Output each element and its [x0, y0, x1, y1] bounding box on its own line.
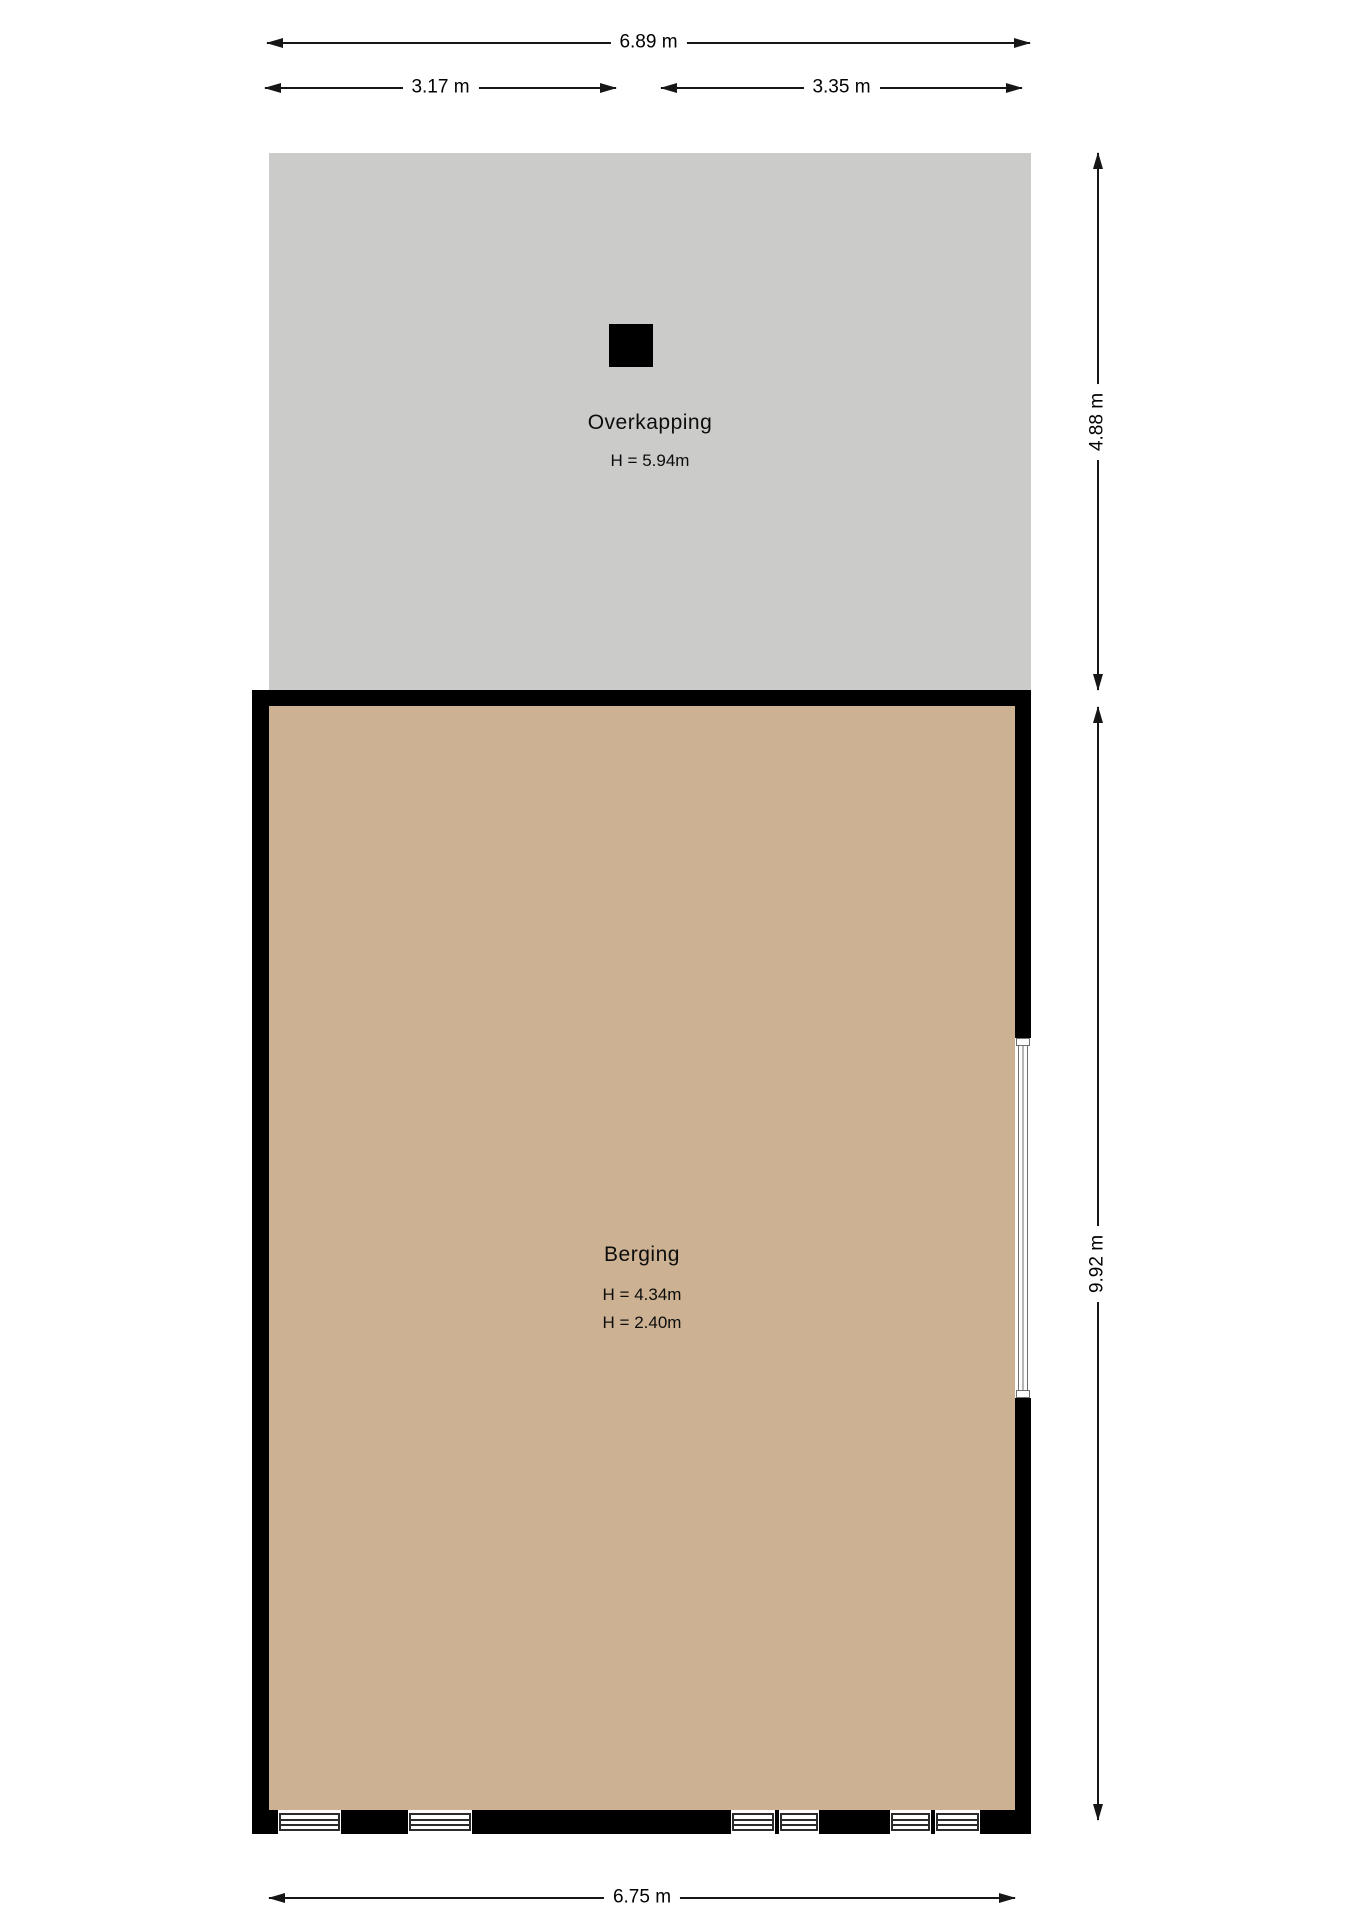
floorplan-canvas: 6.89 m 3.17 m 3.35 m Overkapping H = 5.9… [0, 0, 1358, 1920]
column-post [609, 324, 653, 367]
dimension-top-total-label: 6.89 m [610, 31, 686, 56]
window-pane [936, 1813, 979, 1831]
room-overkapping-name: Overkapping [269, 411, 1031, 435]
dimension-top-right-label: 3.35 m [803, 76, 879, 101]
window-pane [409, 1813, 471, 1831]
bottom-window-3a [731, 1810, 775, 1834]
room-berging-height-2: H = 2.40m [269, 1313, 1015, 1333]
dimension-bottom-label: 6.75 m [604, 1886, 680, 1911]
dimension-top-total: 6.89 m [267, 42, 1030, 44]
room-overkapping: Overkapping H = 5.94m [269, 153, 1031, 690]
bottom-window-1 [278, 1810, 341, 1834]
dimension-top-left: 3.17 m [265, 87, 616, 89]
dimension-right-overkapping-label: 4.88 m [1086, 383, 1111, 459]
dimension-top-right: 3.35 m [661, 87, 1022, 89]
dimension-right-berging-label: 9.92 m [1086, 1225, 1111, 1301]
right-wall-window-cap-bottom [1016, 1390, 1030, 1398]
bottom-window-2 [408, 1810, 472, 1834]
window-pane [780, 1813, 818, 1831]
room-overkapping-height: H = 5.94m [269, 451, 1031, 471]
bottom-window-4b [935, 1810, 980, 1834]
right-wall-window [1018, 1038, 1028, 1398]
right-wall-window-cap-top [1016, 1038, 1030, 1046]
room-berging-floor: Berging H = 4.34m H = 2.40m [269, 706, 1015, 1810]
dimension-bottom: 6.75 m [269, 1897, 1015, 1899]
dimension-top-left-label: 3.17 m [402, 76, 478, 101]
window-pane [732, 1813, 774, 1831]
window-pane [279, 1813, 340, 1831]
bottom-window-4a [890, 1810, 931, 1834]
window-pane [891, 1813, 930, 1831]
room-berging-name: Berging [269, 1243, 1015, 1267]
room-berging-height-1: H = 4.34m [269, 1285, 1015, 1305]
bottom-window-3b [779, 1810, 819, 1834]
dimension-right-berging: 9.92 m [1097, 707, 1099, 1820]
dimension-right-overkapping: 4.88 m [1097, 153, 1099, 690]
